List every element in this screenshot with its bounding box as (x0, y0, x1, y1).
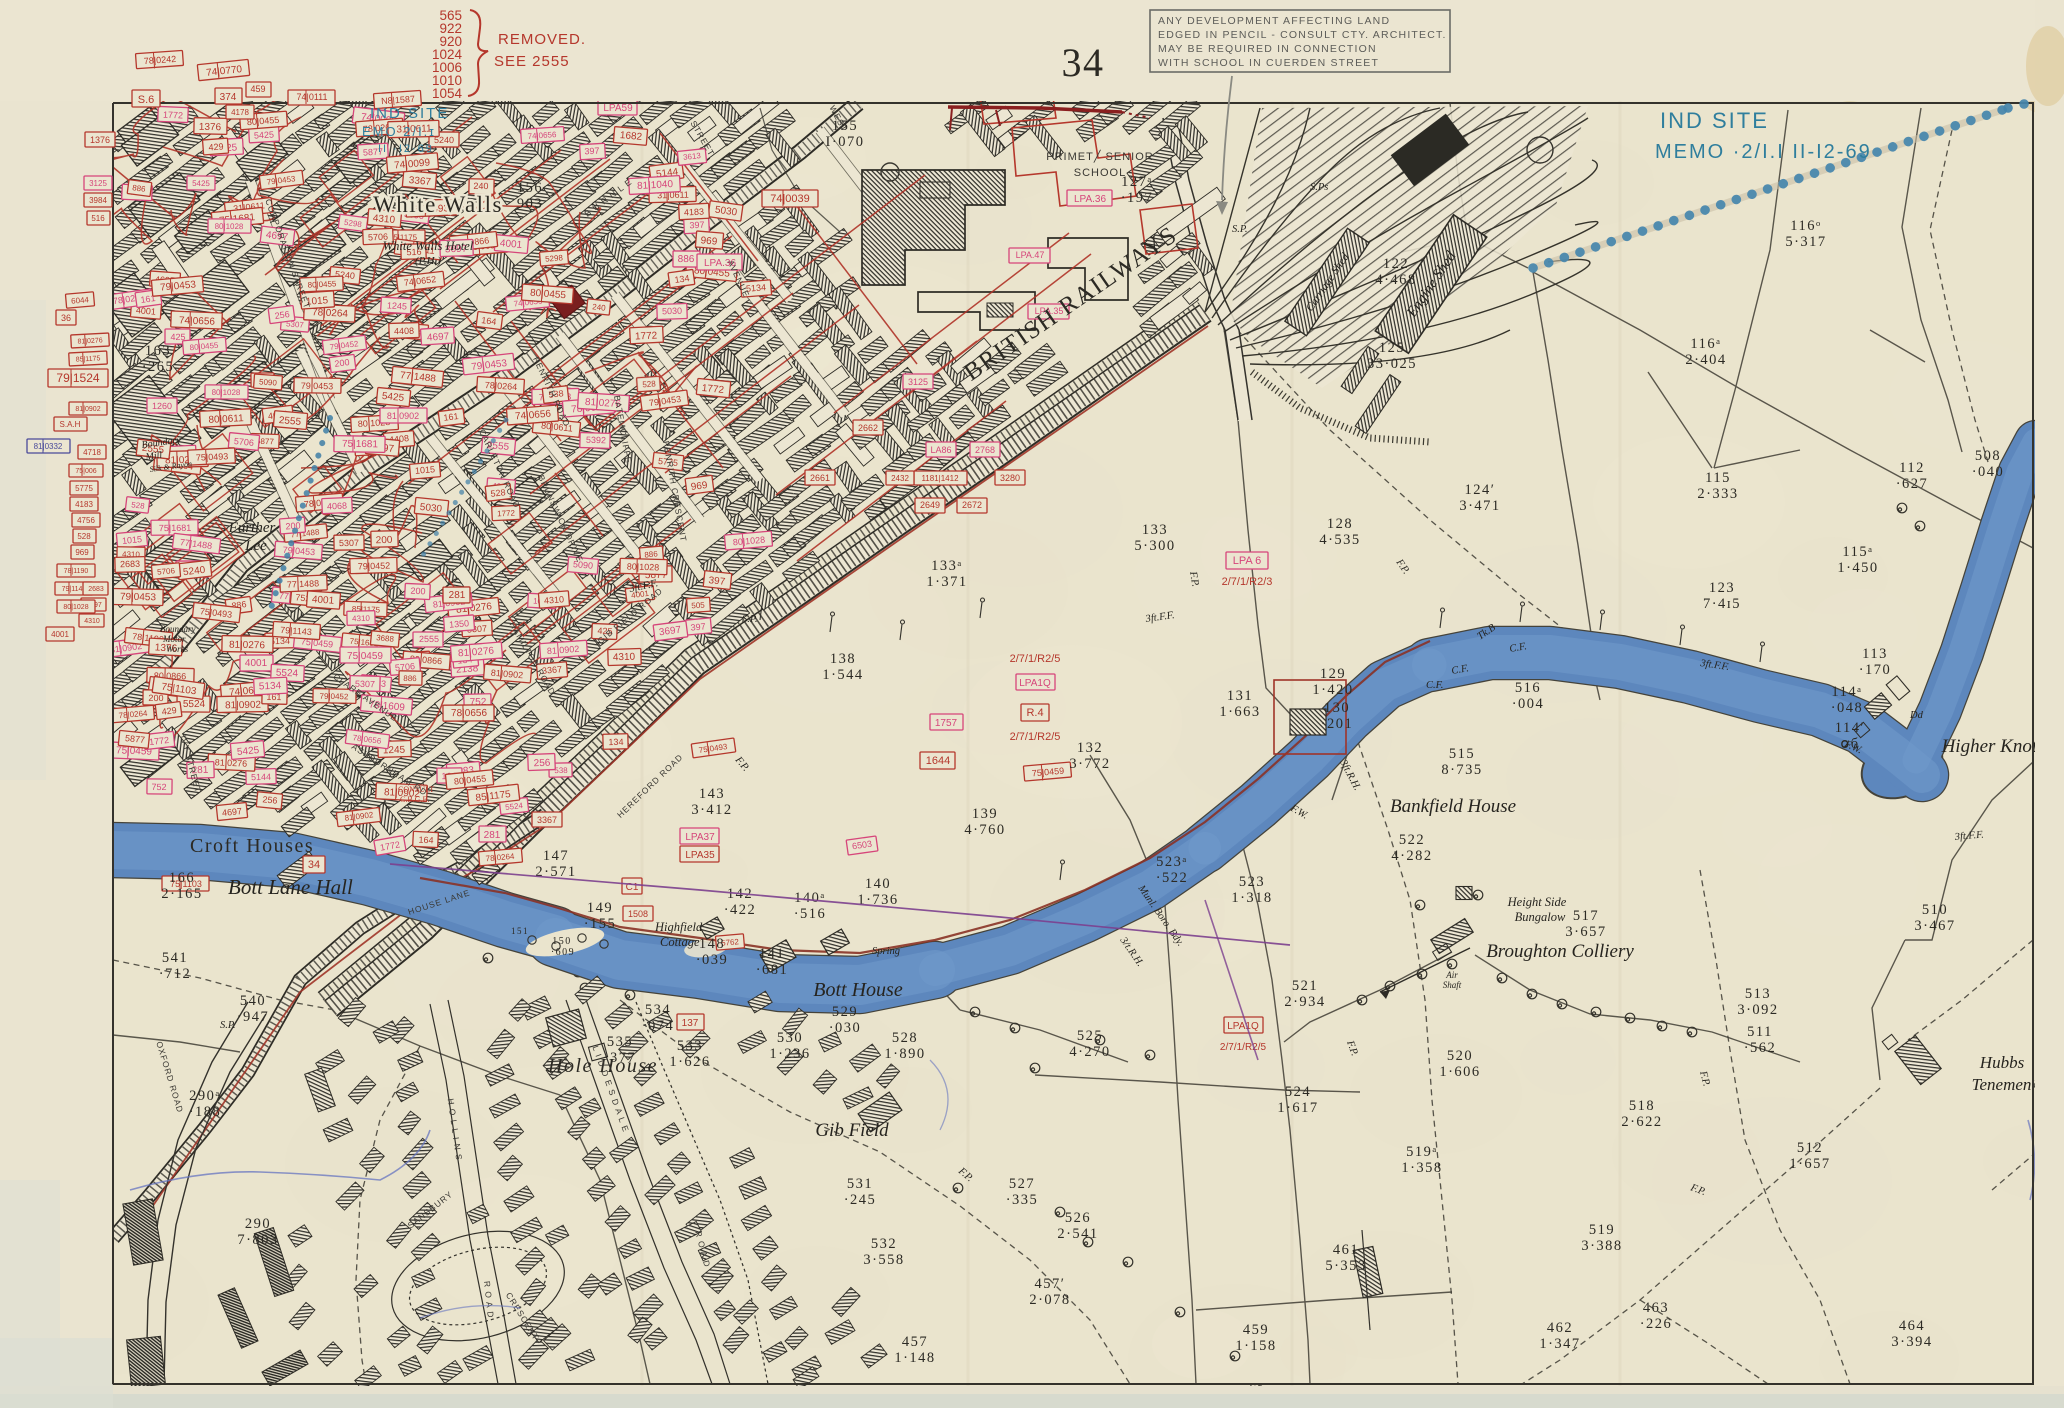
svg-text:1260: 1260 (152, 401, 172, 411)
svg-text:1054: 1054 (432, 86, 463, 101)
svg-text:5425: 5425 (192, 179, 210, 188)
svg-text:LPA 6: LPA 6 (1233, 555, 1262, 567)
svg-text:LPA1Q: LPA1Q (1227, 1021, 1259, 1032)
svg-text:80|1028: 80|1028 (212, 388, 241, 397)
svg-text:516: 516 (91, 214, 105, 223)
svg-text:523ᵃ·522: 523ᵃ·522 (1156, 854, 1189, 886)
svg-text:240: 240 (473, 181, 488, 191)
svg-text:142·422: 142·422 (724, 886, 757, 918)
svg-text:75|006: 75|006 (75, 468, 96, 475)
svg-text:4718: 4718 (83, 448, 101, 457)
svg-text:LPA1Q: LPA1Q (1019, 678, 1051, 689)
svg-text:Works: Works (166, 644, 189, 654)
svg-text:79|1524: 79|1524 (56, 371, 99, 385)
svg-text:4001: 4001 (245, 658, 268, 669)
svg-text:531·245: 531·245 (844, 1176, 877, 1208)
svg-text:969: 969 (690, 480, 708, 493)
svg-text:4756: 4756 (77, 516, 95, 525)
svg-text:PRIMET╱ SENIOR: PRIMET╱ SENIOR (1046, 149, 1153, 163)
svg-text:IND SITE: IND SITE (370, 105, 449, 122)
svg-text:508·040: 508·040 (1972, 448, 2005, 480)
svg-text:81|0902: 81|0902 (75, 406, 100, 413)
svg-text:1772: 1772 (701, 383, 725, 396)
svg-text:5425: 5425 (381, 391, 405, 404)
svg-text:150·609: 150·609 (551, 936, 575, 958)
svg-text:1350: 1350 (449, 618, 470, 630)
svg-text:78|1190: 78|1190 (64, 568, 89, 575)
svg-text:256: 256 (262, 794, 278, 805)
svg-text:969: 969 (75, 548, 89, 557)
svg-text:81|0332: 81|0332 (34, 442, 63, 451)
svg-text:969: 969 (700, 235, 718, 247)
svg-text:80|0455: 80|0455 (307, 279, 337, 289)
svg-text:5524: 5524 (183, 699, 206, 710)
svg-text:281: 281 (449, 590, 466, 601)
svg-text:124ʹ3·471: 124ʹ3·471 (1459, 482, 1500, 514)
svg-text:S.A.H: S.A.H (60, 420, 81, 429)
svg-text:CONSULT: CONSULT (398, 785, 434, 794)
svg-text:80|0611: 80|0611 (208, 413, 244, 426)
svg-text:S.P.: S.P. (742, 614, 758, 625)
svg-text:3367: 3367 (537, 815, 557, 825)
svg-text:79|0453: 79|0453 (120, 592, 157, 604)
svg-text:Bott Lane Hall: Bott Lane Hall (228, 875, 353, 899)
svg-text:752: 752 (151, 782, 166, 792)
svg-text:5030: 5030 (662, 306, 682, 317)
svg-text:3984: 3984 (89, 196, 107, 205)
svg-text:2555: 2555 (278, 415, 302, 428)
svg-text:75|0459: 75|0459 (347, 651, 383, 662)
svg-text:Gib Field: Gib Field (815, 1120, 889, 1141)
svg-text:5392: 5392 (586, 435, 606, 446)
svg-text:886: 886 (132, 183, 147, 194)
svg-text:3688: 3688 (376, 633, 395, 644)
svg-text:77|1488: 77|1488 (287, 578, 320, 589)
svg-text:80|1028: 80|1028 (215, 222, 244, 231)
svg-text:81|0902: 81|0902 (225, 700, 262, 712)
svg-text:519ᵃ1·358: 519ᵃ1·358 (1401, 1144, 1442, 1176)
svg-text:LPA37: LPA37 (685, 832, 715, 843)
svg-text:Bankfield House: Bankfield House (1390, 796, 1516, 817)
svg-text:79|1143: 79|1143 (280, 625, 312, 637)
svg-text:1376: 1376 (90, 135, 110, 145)
svg-text:281: 281 (484, 830, 501, 841)
svg-text:541·712: 541·712 (159, 950, 192, 982)
svg-text:EMO 2/I.ɪ: EMO 2/I.ɪ (362, 124, 436, 139)
svg-text:4408: 4408 (394, 326, 414, 337)
svg-text:Broughton Colliery: Broughton Colliery (1486, 941, 1634, 962)
svg-text:1181|1412: 1181|1412 (921, 474, 959, 483)
svg-text:538: 538 (554, 766, 568, 775)
svg-text:2649: 2649 (920, 500, 940, 510)
svg-text:36: 36 (61, 313, 71, 323)
svg-text:134: 134 (674, 273, 690, 285)
svg-text:Tenemenˠ: Tenemenˠ (1972, 1075, 2038, 1094)
svg-text:EDGED IN PENCIL - CONSULT CTY.: EDGED IN PENCIL - CONSULT CTY. ARCHITECT… (1158, 29, 1447, 41)
svg-text:511·562: 511·562 (1744, 1024, 1777, 1056)
svg-text:886: 886 (403, 674, 417, 683)
svg-text:2768: 2768 (975, 445, 995, 455)
svg-text:80|1028: 80|1028 (63, 604, 88, 611)
svg-text:LPA.36: LPA.36 (1074, 194, 1106, 205)
svg-text:141·681: 141·681 (756, 946, 789, 978)
svg-text:113·170: 113·170 (1859, 646, 1892, 678)
svg-text:5425: 5425 (254, 129, 275, 140)
svg-text:75|1681: 75|1681 (342, 439, 379, 451)
svg-text:REMOVED.: REMOVED. (498, 31, 586, 48)
svg-text:5775: 5775 (75, 484, 93, 493)
svg-text:S.6: S.6 (138, 94, 155, 106)
svg-text:133ᵃ1·371: 133ᵃ1·371 (926, 558, 967, 590)
svg-text:Bott House: Bott House (813, 979, 903, 1001)
svg-text:528: 528 (642, 380, 656, 390)
svg-text:256: 256 (534, 758, 552, 770)
svg-text:Shaft: Shaft (1443, 980, 1462, 990)
svg-text:S.P.: S.P. (1232, 224, 1248, 235)
svg-text:4178: 4178 (231, 108, 249, 117)
svg-text:290ᵃ·188: 290ᵃ·188 (189, 1088, 222, 1120)
svg-text:Higher Knottʹ: Higher Knottʹ (1941, 736, 2048, 757)
svg-text:R.4: R.4 (1026, 707, 1043, 719)
svg-text:5877: 5877 (125, 733, 146, 745)
svg-text:Spring: Spring (872, 946, 900, 957)
svg-text:5425: 5425 (237, 745, 261, 758)
svg-text:528: 528 (77, 532, 91, 541)
svg-text:429: 429 (208, 141, 224, 152)
svg-text:WITH SCHOOL IN CUERDEN STR: WITH SCHOOL IN CUERDEN STREET (1158, 57, 1379, 69)
svg-text:IND SITE: IND SITE (1660, 108, 1769, 133)
svg-text:2/7/1/R2/5: 2/7/1/R2/5 (1220, 1042, 1267, 1053)
svg-text:2683: 2683 (88, 586, 104, 593)
svg-text:459: 459 (250, 84, 265, 94)
svg-text:2/7/1/R2/3: 2/7/1/R2/3 (1222, 576, 1273, 588)
svg-text:2661: 2661 (810, 473, 830, 483)
svg-text:161: 161 (443, 411, 459, 423)
svg-text:115ᵃ1·450: 115ᵃ1·450 (1837, 544, 1878, 576)
svg-text:78|0264: 78|0264 (485, 380, 518, 392)
svg-text:Hubbs: Hubbs (1979, 1053, 2025, 1072)
svg-text:1508: 1508 (628, 909, 648, 919)
svg-text:116ᵒ5·317: 116ᵒ5·317 (1785, 218, 1826, 250)
svg-text:240: 240 (592, 302, 607, 312)
svg-text:(P.H.): (P.H.) (415, 255, 441, 267)
svg-text:1772: 1772 (635, 330, 658, 342)
svg-text:Lee: Lee (244, 538, 267, 554)
svg-text:1757: 1757 (935, 718, 958, 729)
svg-text:5307: 5307 (339, 538, 359, 548)
svg-text:397: 397 (689, 220, 705, 231)
svg-text:163·265: 163·265 (142, 343, 175, 375)
svg-text:75|0493: 75|0493 (196, 451, 229, 463)
svg-text:80|1028: 80|1028 (627, 562, 660, 573)
svg-text:C.B.G.E.: C.B.G.E. (400, 795, 429, 804)
svg-text:463·226: 463·226 (1640, 1300, 1673, 1332)
svg-text:3280: 3280 (1000, 473, 1020, 483)
svg-text:Bungalow: Bungalow (1515, 910, 1566, 924)
svg-text:457ʹ2·078: 457ʹ2·078 (1029, 1276, 1070, 1308)
svg-text:156903: 156903 (517, 180, 543, 212)
svg-text:1376: 1376 (199, 122, 222, 133)
svg-text:374: 374 (220, 92, 237, 103)
svg-text:140ᵃ·516: 140ᵃ·516 (794, 890, 827, 922)
svg-text:3367: 3367 (408, 175, 432, 188)
svg-text:2555: 2555 (419, 634, 439, 644)
svg-text:505: 505 (691, 601, 705, 611)
svg-text:81|1040: 81|1040 (637, 179, 674, 192)
svg-text:5144: 5144 (251, 772, 271, 783)
svg-text:534·074: 534·074 (642, 1002, 675, 1034)
svg-text:397: 397 (708, 575, 726, 588)
svg-text:5030: 5030 (419, 502, 443, 515)
svg-text:2/7/1/R2/5: 2/7/1/R2/5 (1010, 731, 1061, 743)
svg-text:3125: 3125 (89, 179, 107, 188)
svg-text:79|0453: 79|0453 (301, 381, 334, 392)
svg-text:151: 151 (511, 926, 529, 936)
svg-text:2683: 2683 (120, 559, 140, 570)
svg-text:256: 256 (274, 309, 290, 321)
svg-text:C.F.: C.F. (1426, 680, 1443, 691)
svg-text:74|0111: 74|0111 (296, 92, 327, 102)
svg-text:4001: 4001 (51, 630, 69, 639)
svg-text:4310: 4310 (544, 594, 565, 606)
svg-text:34: 34 (1062, 40, 1105, 85)
svg-text:148·039: 148·039 (696, 936, 729, 968)
svg-text:137: 137 (682, 1018, 699, 1029)
svg-text:529·030: 529·030 (829, 1004, 862, 1036)
svg-text:81|0276: 81|0276 (77, 337, 103, 345)
svg-text:4697: 4697 (222, 806, 243, 818)
svg-text:S.P.: S.P. (220, 1020, 236, 1031)
svg-text:4068: 4068 (327, 501, 347, 512)
svg-text:3613: 3613 (683, 151, 702, 162)
svg-text:74|0039: 74|0039 (770, 193, 810, 205)
svg-text:4310: 4310 (352, 614, 371, 623)
svg-text:Croft Houses: Croft Houses (190, 835, 314, 857)
svg-text:85|1175: 85|1175 (76, 355, 101, 363)
svg-text:LPA.47: LPA.47 (1016, 250, 1045, 260)
svg-text:79|0452: 79|0452 (320, 692, 349, 702)
svg-text:81|0902: 81|0902 (387, 411, 419, 421)
svg-text:Height Side: Height Side (1507, 895, 1567, 909)
svg-text:4310: 4310 (84, 618, 100, 625)
svg-text:5706: 5706 (157, 566, 176, 577)
svg-text:78|0264: 78|0264 (312, 307, 349, 320)
svg-text:Highfield: Highfield (654, 920, 703, 934)
svg-text:2/7/1/R2/5: 2/7/1/R2/5 (1010, 653, 1061, 665)
svg-text:200: 200 (148, 693, 163, 703)
svg-text:1772: 1772 (497, 509, 516, 519)
svg-text:6044: 6044 (71, 295, 90, 306)
svg-text:Further: Further (228, 520, 276, 536)
svg-text:1015: 1015 (122, 534, 143, 546)
svg-text:5090: 5090 (259, 377, 278, 387)
svg-text:1772: 1772 (163, 110, 183, 121)
svg-text:White Walls Hotel: White Walls Hotel (383, 239, 474, 253)
svg-text:4183: 4183 (684, 206, 705, 217)
svg-text:Dd: Dd (1909, 710, 1924, 721)
svg-text:5134: 5134 (259, 680, 282, 692)
svg-text:540·947: 540·947 (237, 993, 270, 1025)
svg-text:Air: Air (1445, 970, 1458, 980)
svg-text:200: 200 (376, 535, 393, 546)
svg-text:149·155: 149·155 (584, 900, 617, 932)
svg-text:4697: 4697 (427, 331, 450, 343)
svg-text:429: 429 (161, 705, 177, 717)
svg-text:200: 200 (334, 357, 350, 369)
svg-text:White Walls: White Walls (373, 192, 503, 217)
svg-text:116ᵃ2·404: 116ᵃ2·404 (1685, 336, 1726, 368)
svg-text:4183: 4183 (75, 500, 93, 509)
svg-text:81|0276: 81|0276 (229, 640, 266, 652)
svg-text:3125: 3125 (908, 377, 928, 387)
svg-text:MAY BE REQUIRED IN CONNECT: MAY BE REQUIRED IN CONNECTION (1158, 43, 1377, 55)
svg-text:2432: 2432 (891, 474, 909, 483)
svg-text:164: 164 (481, 315, 497, 327)
svg-text:397: 397 (584, 146, 600, 157)
svg-text:886: 886 (644, 549, 659, 559)
svg-text:S.Ps: S.Ps (1310, 182, 1328, 193)
svg-text:200: 200 (410, 586, 425, 597)
svg-text:SCHOOL: SCHOOL (1074, 167, 1126, 179)
svg-text:79|0452: 79|0452 (358, 561, 391, 572)
svg-text:SEE 2555: SEE 2555 (494, 53, 570, 70)
svg-text:4001: 4001 (311, 594, 334, 607)
svg-text:164: 164 (418, 835, 434, 846)
svg-text:Motor: Motor (162, 634, 186, 644)
svg-text:ANY DEVELOPMENT AFFECTING L: ANY DEVELOPMENT AFFECTING LAND (1158, 15, 1390, 27)
svg-text:5706: 5706 (233, 436, 254, 448)
svg-text:528: 528 (131, 500, 146, 511)
svg-text:397: 397 (690, 621, 706, 632)
svg-text:527·335: 527·335 (1006, 1176, 1039, 1208)
svg-text:1644: 1644 (926, 755, 950, 767)
svg-text:516·004: 516·004 (1512, 680, 1545, 712)
svg-text:1015: 1015 (415, 464, 436, 476)
svg-text:2662: 2662 (858, 423, 878, 433)
svg-text:130·201: 130·201 (1321, 700, 1354, 732)
svg-text:MEMO ·2/I.I II-I2-69: MEMO ·2/I.I II-I2-69 (1655, 141, 1872, 163)
svg-text:112·627: 112·627 (1896, 460, 1929, 492)
svg-text:Boundary: Boundary (160, 624, 196, 634)
svg-text:134: 134 (608, 737, 623, 747)
svg-text:78|0656: 78|0656 (451, 708, 487, 719)
svg-text:74|0656: 74|0656 (179, 315, 216, 327)
svg-text:LA86: LA86 (930, 445, 951, 455)
svg-text:2672: 2672 (962, 500, 982, 510)
svg-text:4001: 4001 (499, 238, 523, 251)
svg-text:LPA59: LPA59 (603, 103, 633, 114)
svg-text:1682: 1682 (619, 130, 643, 143)
svg-text:114ᵃ·048: 114ᵃ·048 (1831, 684, 1864, 716)
svg-text:34: 34 (308, 859, 320, 871)
svg-text:886: 886 (678, 254, 695, 265)
svg-text:Cottage: Cottage (660, 935, 700, 949)
svg-text:II ·I2·69: II ·I2·69 (378, 143, 434, 155)
svg-text:75|1681: 75|1681 (159, 523, 191, 533)
svg-text:LPA35: LPA35 (685, 850, 715, 861)
svg-text:4310: 4310 (613, 652, 636, 664)
svg-text:5298: 5298 (545, 253, 564, 263)
svg-text:1245: 1245 (387, 300, 408, 311)
